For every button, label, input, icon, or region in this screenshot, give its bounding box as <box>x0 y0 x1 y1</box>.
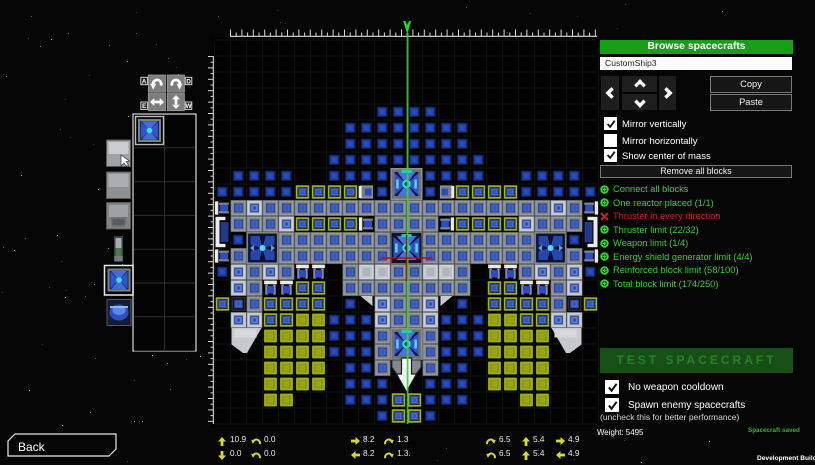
svg-text:D: D <box>186 78 191 85</box>
svg-text:W: W <box>185 103 192 110</box>
svg-text:A: A <box>142 78 147 85</box>
svg-text:E: E <box>142 103 147 110</box>
